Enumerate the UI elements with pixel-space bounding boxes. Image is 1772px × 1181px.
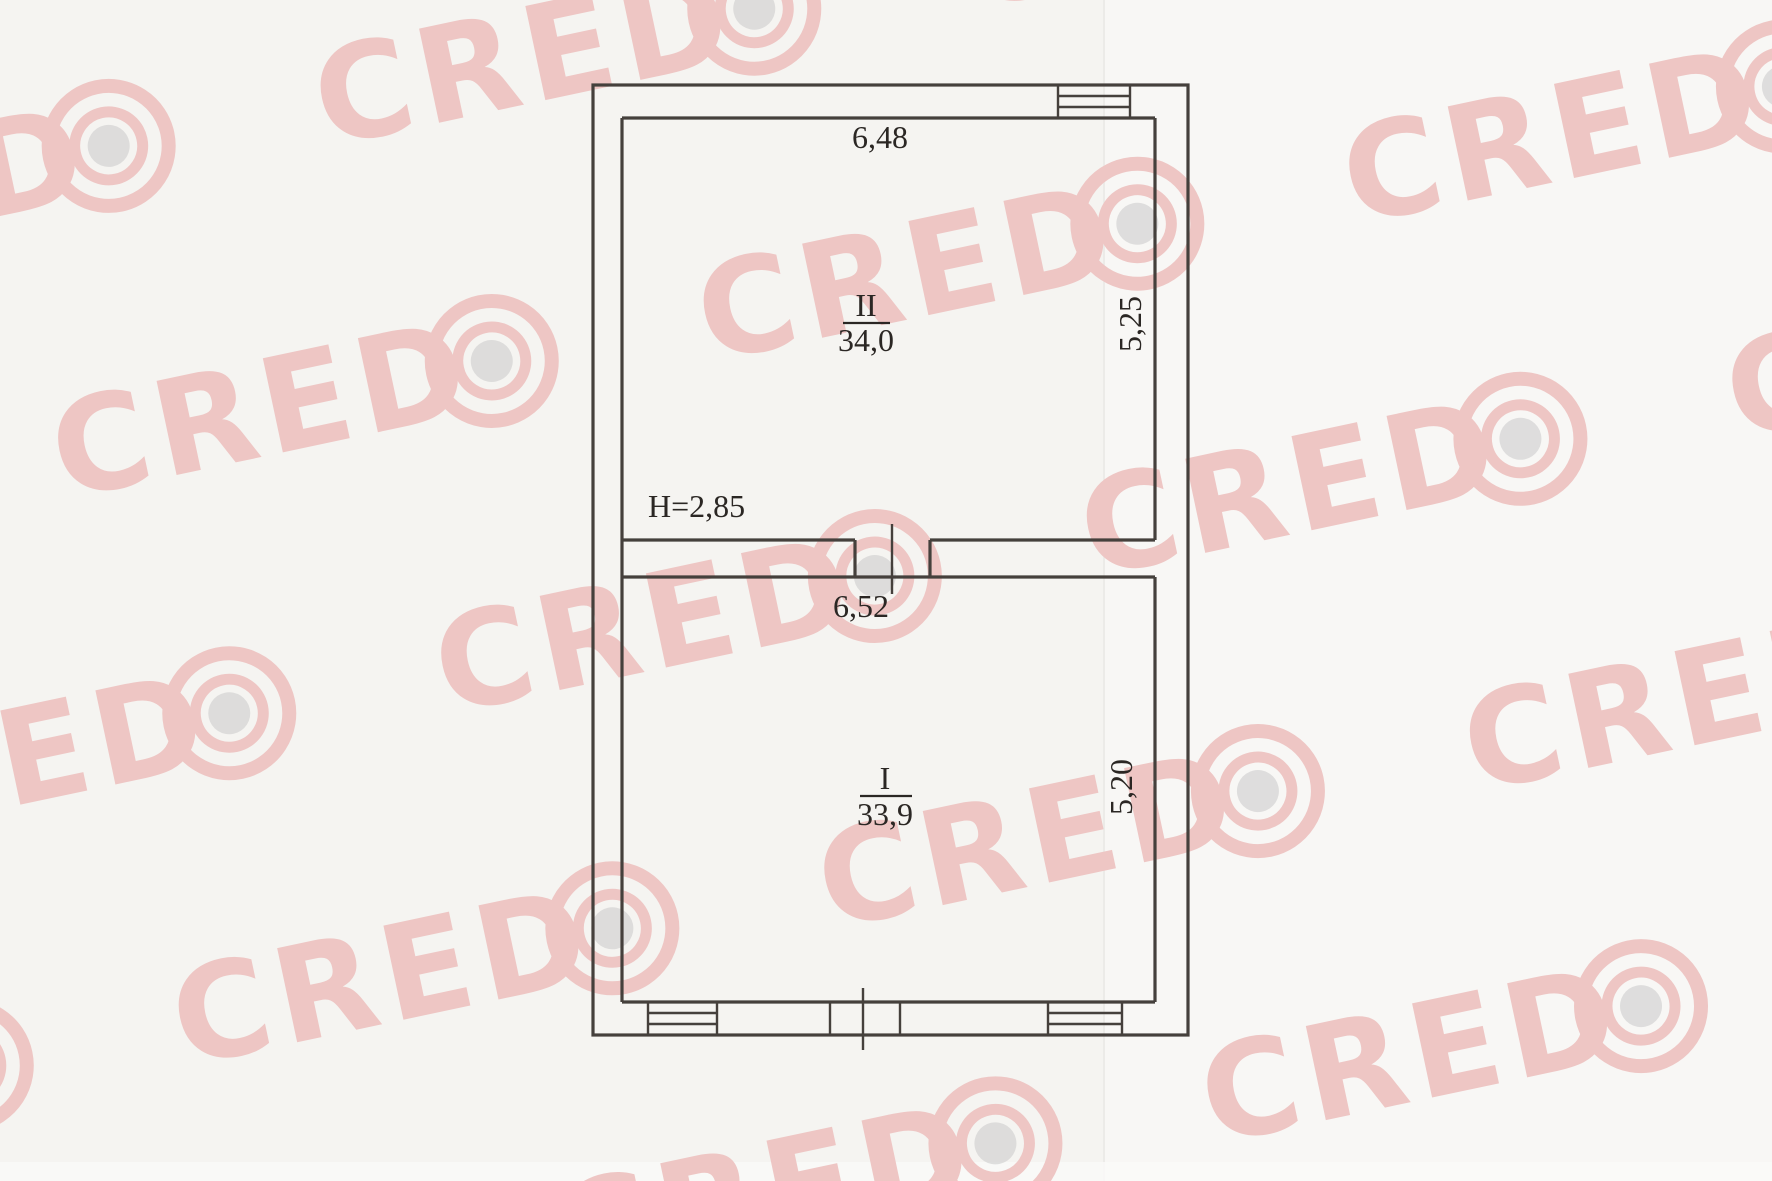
room-1-depth-dimension: 5,20 xyxy=(1103,759,1139,815)
floor-plan-canvas: CRED xyxy=(0,0,1772,1181)
room-2-ceiling-height: H=2,85 xyxy=(648,488,745,524)
room-2-number: II xyxy=(855,287,876,323)
room-1-number: I xyxy=(880,760,891,796)
room-2-depth-dimension: 5,25 xyxy=(1112,296,1148,352)
room-1-width-dimension: 6,52 xyxy=(833,588,889,624)
room-2-width-dimension: 6,48 xyxy=(852,119,908,155)
room-2-area: 34,0 xyxy=(838,322,894,358)
room-1-area: 33,9 xyxy=(857,796,913,832)
scanned-floor-plan-page: CRED xyxy=(0,0,1772,1181)
